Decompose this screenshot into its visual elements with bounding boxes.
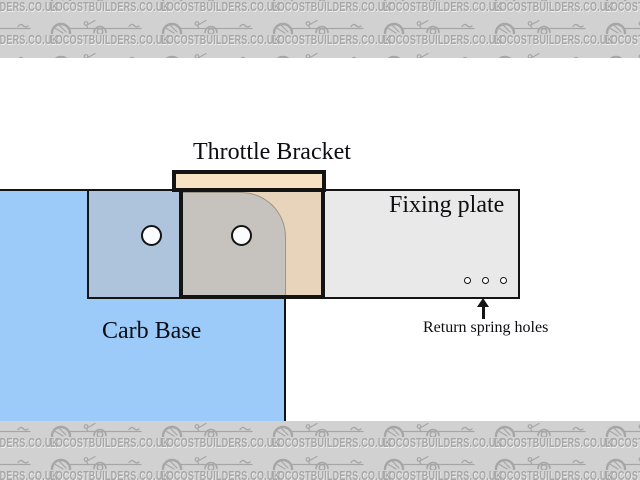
watermark-tile: LOCOSTBUILDERS.CO.UK xyxy=(605,52,640,58)
watermark-tile: LOCOSTBUILDERS.CO.UK xyxy=(161,422,272,455)
watermark-row: LOCOSTBUILDERS.CO.UK LOCOSTBUILDERS.CO.U… xyxy=(0,455,640,480)
car-sketch-icon xyxy=(50,422,142,437)
watermark-tile: LOCOSTBUILDERS.CO.UK xyxy=(50,52,161,58)
car-sketch-icon xyxy=(272,422,364,437)
watermark-text: LOCOSTBUILDERS.CO.UK xyxy=(272,1,391,14)
watermark-tile: LOCOSTBUILDERS.CO.UK xyxy=(50,422,161,455)
watermark-tile: LOCOSTBUILDERS.CO.UK xyxy=(0,455,50,480)
car-sketch-icon xyxy=(0,422,31,437)
watermark-row: LOCOSTBUILDERS.CO.UK LOCOSTBUILDERS.CO.U… xyxy=(0,52,640,58)
watermark-tile: LOCOSTBUILDERS.CO.UK xyxy=(383,422,494,455)
watermark-tile: LOCOSTBUILDERS.CO.UK xyxy=(494,422,605,455)
return-spring-hole xyxy=(500,277,507,284)
car-sketch-icon xyxy=(494,455,586,470)
car-sketch-icon xyxy=(383,422,475,437)
watermark-text: LOCOSTBUILDERS.CO.UK xyxy=(494,1,613,14)
watermark-text: LOCOSTBUILDERS.CO.UK xyxy=(383,437,502,450)
car-sketch-icon xyxy=(161,455,253,470)
watermark-tile: LOCOSTBUILDERS.CO.UK xyxy=(0,19,50,52)
watermark-row: LOCOSTBUILDERS.CO.UK LOCOSTBUILDERS.CO.U… xyxy=(0,422,640,455)
car-sketch-icon xyxy=(0,19,31,34)
watermark-text: LOCOSTBUILDERS.CO.UK xyxy=(50,34,169,47)
watermark-tile: LOCOSTBUILDERS.CO.UK xyxy=(161,455,272,480)
watermark-text: LOCOSTBUILDERS.CO.UK xyxy=(272,34,391,47)
car-sketch-icon xyxy=(161,422,253,437)
car-sketch-icon xyxy=(605,422,640,437)
watermark-text: LOCOSTBUILDERS.CO.UK xyxy=(494,34,613,47)
watermark-tile: LOCOSTBUILDERS.CO.UK xyxy=(0,422,50,455)
watermark-text: LOCOSTBUILDERS.CO.UK xyxy=(50,470,169,480)
car-sketch-icon xyxy=(494,19,586,34)
car-sketch-icon xyxy=(494,52,586,58)
car-sketch-icon xyxy=(161,19,253,34)
car-sketch-icon xyxy=(50,455,142,470)
car-sketch-icon xyxy=(605,52,640,58)
watermark-text: LOCOSTBUILDERS.CO.UK xyxy=(161,1,280,14)
watermark-tile: LOCOSTBUILDERS.CO.UK xyxy=(383,52,494,58)
watermark-row: LOCOSTBUILDERS.CO.UK LOCOSTBUILDERS.CO.U… xyxy=(0,19,640,52)
watermark-tile: LOCOSTBUILDERS.CO.UK xyxy=(605,0,640,19)
car-sketch-icon xyxy=(272,455,364,470)
watermark-tile: LOCOSTBUILDERS.CO.UK xyxy=(161,52,272,58)
label-fixing-plate: Fixing plate xyxy=(389,193,504,217)
car-sketch-icon xyxy=(0,52,31,58)
watermark-tile: LOCOSTBUILDERS.CO.UK xyxy=(161,0,272,19)
watermark-tile: LOCOSTBUILDERS.CO.UK xyxy=(272,19,383,52)
watermark-tile: LOCOSTBUILDERS.CO.UK xyxy=(272,455,383,480)
watermark-text: LOCOSTBUILDERS.CO.UK xyxy=(605,470,640,480)
watermark-band-top: LOCOSTBUILDERS.CO.UK LOCOSTBUILDERS.CO.U… xyxy=(0,0,640,58)
car-sketch-icon xyxy=(50,52,142,58)
up-arrow-shaft xyxy=(482,307,485,319)
watermark-text: LOCOSTBUILDERS.CO.UK xyxy=(605,34,640,47)
watermark-tile: LOCOSTBUILDERS.CO.UK xyxy=(494,455,605,480)
watermark-tile: LOCOSTBUILDERS.CO.UK xyxy=(0,52,50,58)
car-sketch-icon xyxy=(383,19,475,34)
car-sketch-icon xyxy=(605,455,640,470)
watermark-text: LOCOSTBUILDERS.CO.UK xyxy=(272,470,391,480)
watermark-band-bottom: LOCOSTBUILDERS.CO.UK LOCOSTBUILDERS.CO.U… xyxy=(0,421,640,480)
watermark-tile: LOCOSTBUILDERS.CO.UK xyxy=(605,422,640,455)
watermark-text: LOCOSTBUILDERS.CO.UK xyxy=(383,470,502,480)
watermark-text: LOCOSTBUILDERS.CO.UK xyxy=(50,437,169,450)
watermark-tile: LOCOSTBUILDERS.CO.UK xyxy=(494,52,605,58)
throttle-bracket-tab xyxy=(172,170,326,192)
watermark-text: LOCOSTBUILDERS.CO.UK xyxy=(383,1,502,14)
car-sketch-icon xyxy=(383,455,475,470)
watermark-text: LOCOSTBUILDERS.CO.UK xyxy=(383,34,502,47)
watermark-tile: LOCOSTBUILDERS.CO.UK xyxy=(383,0,494,19)
watermark-tile: LOCOSTBUILDERS.CO.UK xyxy=(494,0,605,19)
watermark-tile: LOCOSTBUILDERS.CO.UK xyxy=(272,0,383,19)
car-sketch-icon xyxy=(0,455,31,470)
watermark-tile: LOCOSTBUILDERS.CO.UK xyxy=(50,455,161,480)
watermark-text: LOCOSTBUILDERS.CO.UK xyxy=(161,437,280,450)
car-sketch-icon xyxy=(272,19,364,34)
watermark-tile: LOCOSTBUILDERS.CO.UK xyxy=(383,455,494,480)
watermark-tile: LOCOSTBUILDERS.CO.UK xyxy=(494,19,605,52)
throttle-bracket-body xyxy=(179,188,325,299)
label-carb-base: Carb Base xyxy=(102,319,201,343)
watermark-text: LOCOSTBUILDERS.CO.UK xyxy=(161,34,280,47)
watermark-tile: LOCOSTBUILDERS.CO.UK xyxy=(50,19,161,52)
watermark-text: LOCOSTBUILDERS.CO.UK xyxy=(605,1,640,14)
watermark-text: LOCOSTBUILDERS.CO.UK xyxy=(50,1,169,14)
watermark-row: LOCOSTBUILDERS.CO.UK LOCOSTBUILDERS.CO.U… xyxy=(0,0,640,19)
watermark-tile: LOCOSTBUILDERS.CO.UK xyxy=(272,52,383,58)
car-sketch-icon xyxy=(272,52,364,58)
watermark-tile: LOCOSTBUILDERS.CO.UK xyxy=(272,422,383,455)
bolt-hole xyxy=(231,225,252,246)
watermark-text: LOCOSTBUILDERS.CO.UK xyxy=(161,470,280,480)
watermark-tile: LOCOSTBUILDERS.CO.UK xyxy=(605,19,640,52)
bolt-hole xyxy=(141,225,162,246)
watermark-text: LOCOSTBUILDERS.CO.UK xyxy=(605,437,640,450)
watermark-tile: LOCOSTBUILDERS.CO.UK xyxy=(0,0,50,19)
car-sketch-icon xyxy=(50,19,142,34)
car-sketch-icon xyxy=(605,19,640,34)
label-return-spring-holes: Return spring holes xyxy=(423,320,548,336)
watermark-tile: LOCOSTBUILDERS.CO.UK xyxy=(50,0,161,19)
watermark-tile: LOCOSTBUILDERS.CO.UK xyxy=(161,19,272,52)
car-sketch-icon xyxy=(161,52,253,58)
car-sketch-icon xyxy=(494,422,586,437)
label-throttle-bracket: Throttle Bracket xyxy=(193,140,351,164)
return-spring-hole xyxy=(464,277,471,284)
watermark-tile: LOCOSTBUILDERS.CO.UK xyxy=(605,455,640,480)
watermark-text: LOCOSTBUILDERS.CO.UK xyxy=(494,437,613,450)
watermark-tile: LOCOSTBUILDERS.CO.UK xyxy=(383,19,494,52)
car-sketch-icon xyxy=(383,52,475,58)
watermark-text: LOCOSTBUILDERS.CO.UK xyxy=(494,470,613,480)
watermark-text: LOCOSTBUILDERS.CO.UK xyxy=(272,437,391,450)
diagram-image: LOCOSTBUILDERS.CO.UK LOCOSTBUILDERS.CO.U… xyxy=(0,0,640,480)
up-arrow-icon xyxy=(477,298,489,307)
return-spring-hole xyxy=(482,277,489,284)
